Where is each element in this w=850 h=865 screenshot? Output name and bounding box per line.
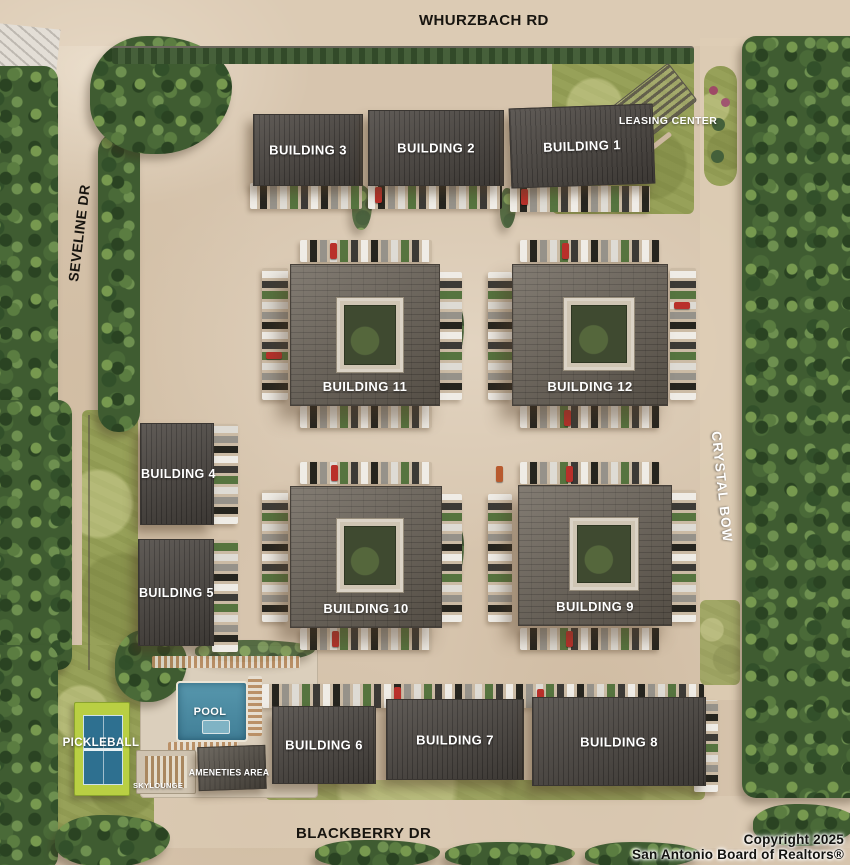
car-red: [332, 631, 339, 647]
parking-row: [368, 183, 502, 209]
pickleball-court: [74, 702, 130, 796]
building-8: BUILDING 8: [532, 697, 706, 786]
building-4-label: BUILDING 4: [141, 467, 213, 481]
median-tree: [711, 150, 724, 163]
parking-row: [510, 186, 650, 212]
car-red: [566, 631, 573, 647]
building-5: BUILDING 5: [138, 539, 214, 646]
hedge-north: [112, 46, 694, 64]
parking-row: [300, 628, 432, 650]
pickleball-label: PICKLEBALL: [63, 737, 140, 749]
lounge-chairs: [248, 676, 262, 736]
building-7-label: BUILDING 7: [387, 732, 523, 747]
car-red: [521, 189, 528, 205]
building-5-label: BUILDING 5: [139, 586, 213, 600]
parking-row: [520, 240, 660, 262]
parking-column: [670, 268, 696, 400]
parking-column: [488, 494, 512, 622]
building-10-courtyard: [336, 518, 404, 593]
site-plan-map: BUILDING 3 BUILDING 2 BUILDING 1 BUILDIN…: [0, 0, 850, 865]
lounge-chairs: [152, 656, 300, 668]
parking-column: [212, 540, 238, 652]
building-12-label: BUILDING 12: [513, 379, 667, 394]
building-6: BUILDING 6: [272, 706, 376, 784]
parking-row: [520, 462, 660, 484]
parking-column: [262, 268, 288, 400]
parking-column: [488, 272, 512, 400]
amenities-area-label: AMENETIES AREA: [189, 768, 269, 779]
skylounge-label: SKYLOUNGE: [133, 781, 183, 790]
building-10: BUILDING 10: [290, 486, 442, 628]
car-orange: [496, 466, 503, 482]
pool-tanning-shelf: [202, 720, 230, 734]
road-label-whurzbach: WHURZBACH RD: [419, 12, 549, 29]
road-label-blackberry: BLACKBERRY DR: [296, 825, 431, 842]
parking-column: [438, 272, 462, 400]
copyright-line2: San Antonio Board of Realtors®: [632, 847, 844, 862]
parking-row: [300, 462, 432, 484]
parking-row: [250, 183, 362, 209]
building-9-courtyard: [569, 517, 639, 591]
parking-row: [520, 406, 660, 428]
tree-cluster-south3: [445, 842, 575, 865]
parking-column: [670, 490, 696, 622]
building-7: BUILDING 7: [386, 699, 524, 780]
building-2-label: BUILDING 2: [369, 141, 503, 156]
forest-left-mid: [0, 400, 72, 670]
car-red: [674, 302, 690, 309]
building-1-label: BUILDING 1: [511, 136, 653, 156]
tree-strip-seveline: [98, 132, 140, 432]
leasing-center-label: LEASING CENTER: [619, 115, 717, 127]
crepe-myrtle: [721, 98, 730, 107]
parking-row: [300, 240, 432, 262]
building-12-garden: [571, 305, 627, 363]
building-9-garden: [577, 525, 631, 583]
car-red: [562, 243, 569, 259]
building-11-garden: [344, 305, 396, 365]
lawn-east-south: [700, 600, 740, 685]
copyright-line1: Copyright 2025: [632, 832, 844, 847]
forest-left-south: [0, 645, 58, 865]
fence-west: [88, 415, 90, 670]
building-3: BUILDING 3: [253, 114, 363, 186]
parking-row: [520, 628, 660, 650]
building-11-courtyard: [336, 297, 404, 373]
copyright-notice: Copyright 2025 San Antonio Board of Real…: [632, 832, 844, 862]
building-9-label: BUILDING 9: [519, 599, 671, 614]
crepe-myrtle: [709, 86, 718, 95]
car-red: [375, 187, 382, 203]
building-12: BUILDING 12: [512, 264, 668, 406]
building-9: BUILDING 9: [518, 485, 672, 626]
tree-cluster-south1: [55, 815, 170, 865]
car-red: [564, 410, 571, 426]
car-red: [266, 352, 282, 359]
pool-label: POOL: [194, 706, 227, 718]
forest-right: [742, 36, 850, 798]
building-4: BUILDING 4: [140, 423, 214, 525]
building-10-label: BUILDING 10: [291, 601, 441, 616]
car-red: [566, 466, 573, 482]
car-red: [331, 465, 338, 481]
building-3-label: BUILDING 3: [254, 143, 362, 158]
building-12-courtyard: [563, 297, 635, 371]
building-11: BUILDING 11: [290, 264, 440, 406]
parking-row: [300, 406, 432, 428]
building-10-garden: [344, 526, 396, 585]
car-red: [330, 243, 337, 259]
building-6-label: BUILDING 6: [273, 738, 375, 753]
building-8-label: BUILDING 8: [533, 734, 705, 749]
tree-cluster-south2: [315, 840, 440, 865]
forest-left-north: [0, 66, 58, 416]
building-11-label: BUILDING 11: [291, 379, 439, 394]
pickleball-court-surface: [83, 715, 123, 785]
building-2: BUILDING 2: [368, 110, 504, 186]
parking-column: [262, 490, 288, 622]
